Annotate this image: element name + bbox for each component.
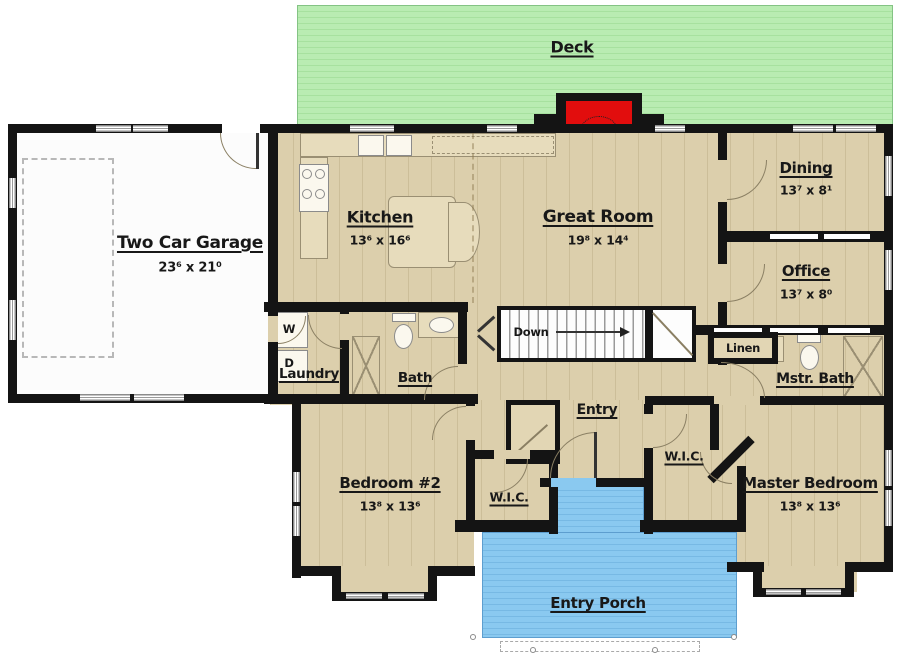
kitchen-dims: 13⁶ x 16⁶ xyxy=(350,233,411,248)
wall xyxy=(710,404,719,450)
window xyxy=(793,125,833,132)
kitchen-sink xyxy=(386,135,412,156)
garage-car-space xyxy=(22,158,114,358)
bedroom2-label: Bedroom #2 xyxy=(339,474,440,492)
master-bedroom-label: Master Bedroom xyxy=(742,474,878,492)
window xyxy=(885,250,892,290)
stove-burner xyxy=(315,169,325,179)
floor-plan: Deck Two Car Garage 23⁶ x 21⁰ Kitchen 13… xyxy=(0,0,900,657)
door-opening xyxy=(718,160,727,202)
window xyxy=(80,394,130,401)
kitchen-island-bar xyxy=(448,202,480,262)
kitchen-upper-cabinets xyxy=(432,136,554,154)
stove-burner xyxy=(302,189,312,199)
wic-master-label: W.I.C. xyxy=(664,449,703,464)
door-opening xyxy=(466,406,475,440)
toilet-tank xyxy=(797,334,821,343)
washer-label: W xyxy=(283,322,295,336)
window xyxy=(487,125,517,132)
great-room-dims: 19⁸ x 14⁴ xyxy=(568,233,629,248)
stove-burner xyxy=(315,189,325,199)
window xyxy=(806,589,841,595)
wall xyxy=(849,562,890,572)
window xyxy=(346,593,382,599)
dining-label: Dining xyxy=(779,159,832,177)
porch-wide xyxy=(482,532,737,638)
window xyxy=(766,589,801,595)
porch-narrow xyxy=(551,484,644,534)
porch-post-marker xyxy=(652,647,658,653)
wall xyxy=(455,520,558,532)
window xyxy=(885,450,892,486)
stairs-down-label: Down xyxy=(513,325,548,339)
wall xyxy=(640,520,746,532)
master-bath-label: Mstr. Bath xyxy=(776,371,854,387)
wall xyxy=(264,302,468,312)
window xyxy=(885,490,892,526)
window xyxy=(293,506,300,536)
stair-arrow-icon xyxy=(620,327,630,337)
door-opening xyxy=(268,316,278,342)
porch-post-marker xyxy=(530,647,536,653)
window xyxy=(388,593,424,599)
window xyxy=(293,472,300,502)
linen-label: Linen xyxy=(726,341,760,355)
garage-dims: 23⁶ x 21⁰ xyxy=(158,261,221,276)
master-shower xyxy=(843,336,883,398)
window xyxy=(350,125,394,132)
kitchen-greatroom-divider xyxy=(472,133,474,303)
master-bedroom-dims: 13⁸ x 13⁶ xyxy=(780,499,841,514)
garage-side-door-opening xyxy=(222,124,260,133)
toilet-tank xyxy=(392,313,416,322)
cased-opening xyxy=(824,234,870,239)
deck-label: Deck xyxy=(550,38,593,57)
garage-label: Two Car Garage xyxy=(117,233,263,253)
wall xyxy=(645,396,893,405)
window xyxy=(9,300,16,340)
window xyxy=(133,125,168,132)
office-dims: 13⁷ x 8⁰ xyxy=(780,287,832,302)
window xyxy=(885,156,892,196)
laundry-label: Laundry xyxy=(279,366,339,382)
office-label: Office xyxy=(782,262,830,280)
window xyxy=(655,125,685,132)
front-door-opening xyxy=(551,478,596,487)
kitchen-label: Kitchen xyxy=(347,208,414,227)
entry-porch-label: Entry Porch xyxy=(550,594,645,612)
bedroom2-dims: 13⁸ x 13⁶ xyxy=(360,499,421,514)
toilet-bowl xyxy=(394,324,413,349)
stair-direction-line xyxy=(556,331,620,333)
kitchen-sink xyxy=(358,135,384,156)
window xyxy=(9,178,16,208)
door-opening xyxy=(494,450,530,459)
porch-post-marker xyxy=(731,634,737,640)
window xyxy=(96,125,131,132)
door-leaf xyxy=(256,133,259,169)
bath-sink xyxy=(429,317,454,333)
wic-bedroom2-label: W.I.C. xyxy=(489,490,528,505)
toilet-bowl xyxy=(800,345,819,370)
dining-dims: 13⁷ x 8¹ xyxy=(780,183,832,198)
door-opening xyxy=(718,264,727,302)
front-door-leaf xyxy=(594,432,597,478)
window xyxy=(836,125,876,132)
great-room-label: Great Room xyxy=(543,207,654,227)
shower xyxy=(352,336,380,396)
door-opening xyxy=(644,414,653,448)
stove-burner xyxy=(302,169,312,179)
window xyxy=(134,394,184,401)
cased-opening xyxy=(770,234,818,239)
entry-label: Entry xyxy=(577,402,618,418)
cased-opening xyxy=(828,328,870,333)
porch-post-marker xyxy=(470,634,476,640)
bath-label: Bath xyxy=(398,370,432,386)
wall xyxy=(268,124,278,404)
